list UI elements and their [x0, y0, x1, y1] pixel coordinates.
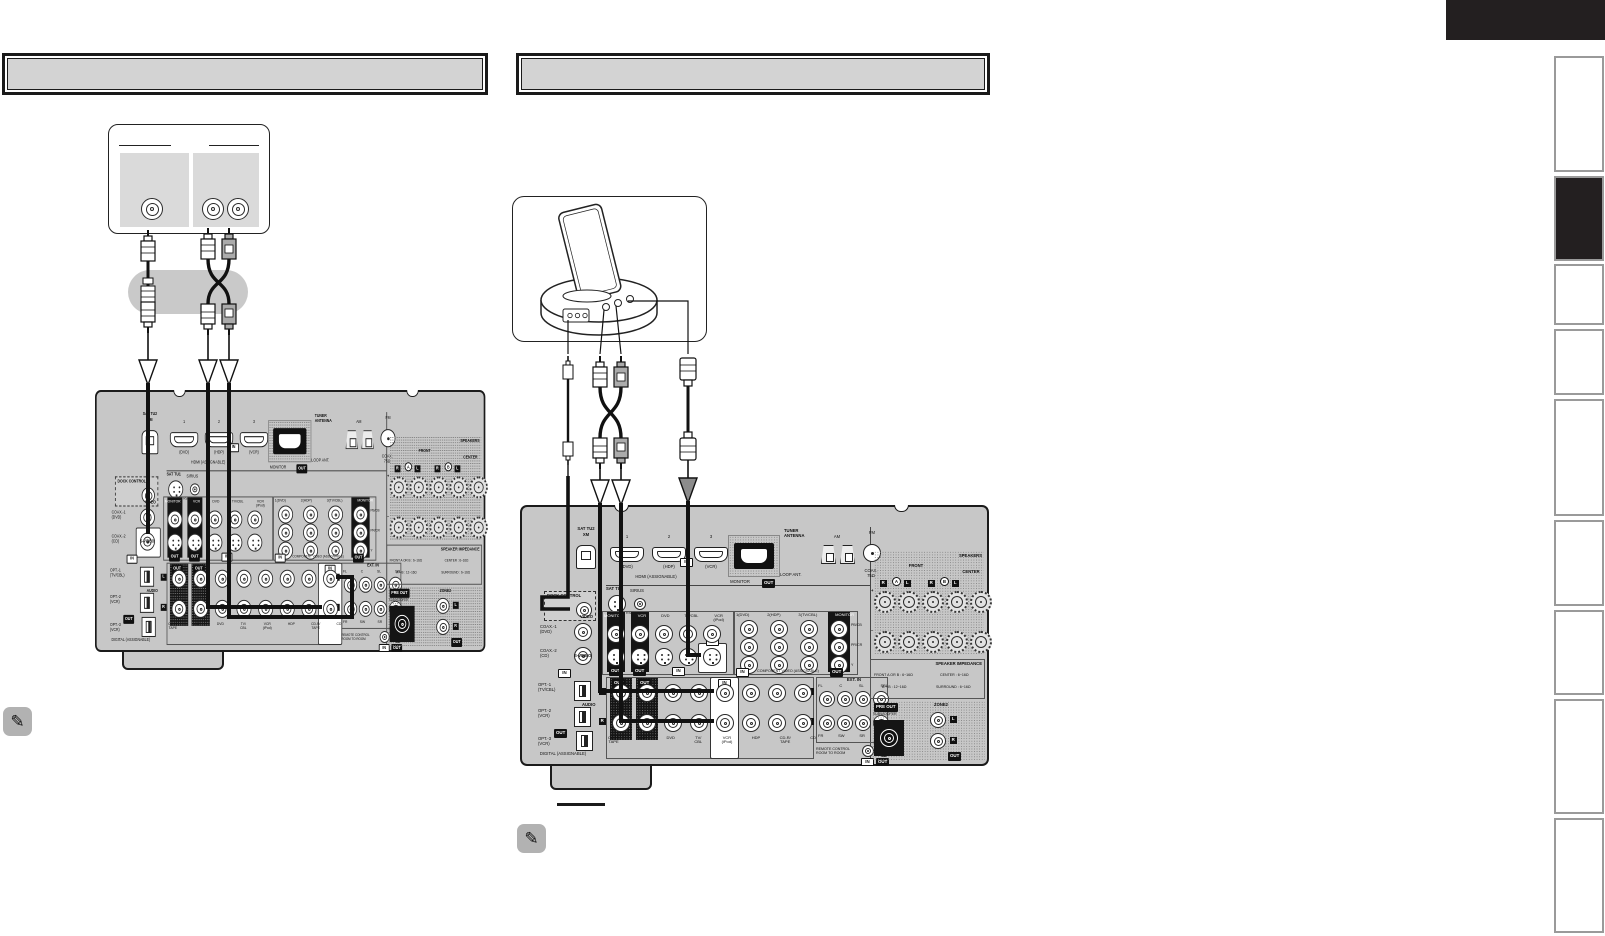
out-badge: OUT: [296, 464, 307, 473]
zone2-label: ZONE2: [924, 703, 958, 708]
grid-label: SR: [377, 620, 382, 624]
speaker-l-badge: L: [455, 465, 460, 472]
grid-label: MONITOR: [357, 498, 373, 502]
rca-jack: [353, 524, 368, 542]
component-column-labels: 1(DVD)2(HDP)3(TV/CBL)MONITOR: [275, 498, 373, 502]
am-terminal: [821, 545, 836, 564]
rca-jack: [742, 684, 760, 702]
coax1-jack: [140, 508, 155, 526]
in-badge: IN: [736, 668, 749, 677]
zone2-l-jack: [436, 598, 449, 614]
opt1-label: OPT.-1 (TV/CBL): [538, 683, 572, 693]
speaker-post: [874, 631, 896, 653]
speaker-post: [450, 517, 468, 539]
opt1-connector: [574, 681, 591, 701]
grid-label: PB/CB: [851, 624, 862, 628]
audio-r-badge: R: [599, 718, 606, 725]
out-badge: OUT: [762, 579, 775, 588]
speaker-post: [874, 591, 896, 613]
rca-jack: [236, 600, 251, 618]
component-caption: COMPONENT VIDEO (ASSIGNABLE): [750, 669, 826, 673]
impedance-cell: CENTER : 6~16Ω: [940, 673, 984, 677]
av-receiver-rear-panel-left: SAT TU2 XM 1 (DVD) 2 (HDP) 3 (VCR) IN HD…: [95, 390, 485, 652]
chassis-notch: [894, 505, 909, 512]
fm-label: FM: [862, 531, 882, 536]
sidebar-tab-5: [1554, 399, 1604, 516]
page-corner-tab: [1446, 0, 1605, 40]
dock-control-label: DOCK CONTROL: [547, 594, 595, 599]
grid-label: C: [839, 684, 842, 688]
grid-label: PB/CB: [370, 509, 379, 513]
pencil-glyph: ✎: [10, 712, 24, 732]
pencil-glyph: ✎: [524, 829, 538, 849]
rca-jack: [328, 505, 343, 523]
av-receiver-rear-panel-right: SAT TU2 XM 1 (DVD) 2 (HDP) 3 (VCR) IN HD…: [520, 505, 989, 766]
rca-jack: [278, 524, 293, 542]
rca-jack: [800, 638, 818, 656]
hdmi-1-sub: (DVD): [170, 450, 198, 455]
coax1-label: COAX.-1 (DVD): [540, 625, 572, 635]
rc-jack: [190, 483, 200, 495]
svideo-label: S-VIDEO: [574, 654, 602, 659]
rca-jack: [215, 600, 230, 618]
rca-jack: [631, 625, 649, 643]
grid-label: HDP: [752, 736, 760, 745]
rca-jack: [830, 620, 848, 638]
grid-label: VCR (iPod): [263, 622, 272, 631]
rca-jack: [703, 625, 721, 643]
sidebar-tab-7: [1554, 610, 1604, 695]
grid-label: DVD: [217, 622, 224, 631]
rca-jack: [800, 620, 818, 638]
rca-jack: [227, 534, 242, 552]
rca-jack: [740, 638, 758, 656]
grid-label: VCR (iPod): [256, 499, 265, 508]
sat-tu1-label: SAT TU1: [606, 587, 632, 592]
in-badge: IN: [558, 669, 571, 678]
rca-jack: [794, 684, 812, 702]
rca-jack: [353, 505, 368, 523]
in-badge: IN: [228, 443, 239, 452]
speaker-post: [390, 517, 408, 539]
rca-jack: [301, 570, 316, 588]
hdmi-1-connector: [610, 547, 644, 562]
sidebar-tab-1: [1554, 56, 1604, 172]
in-badge: IN: [672, 667, 685, 676]
subwoofer-jack: [880, 729, 898, 747]
rca-jack: [690, 684, 708, 702]
grid-label: VCR: [638, 614, 646, 623]
speakers-title: SPEAKERS: [436, 439, 479, 444]
coax2-label: COAX.-2 (CD): [112, 535, 139, 545]
zone2-l-badge: L: [950, 716, 957, 723]
rca-jack: [344, 601, 357, 617]
rca-jack: [323, 600, 338, 618]
grid-label: Y: [370, 550, 379, 554]
rca-jack: [837, 715, 853, 731]
audio-r-badge: R: [161, 604, 166, 611]
component-row-labels: PB/CBPR/CRY: [370, 509, 379, 553]
impedance-cell: CENTER : 6~16Ω: [445, 559, 482, 563]
chassis-notch: [614, 505, 629, 512]
speaker-post: [970, 591, 992, 613]
sidebar-tab-4: [1554, 329, 1604, 395]
hdmi-3-num: 3: [694, 535, 728, 540]
out-badge: OUT: [451, 638, 462, 647]
remote-control-label: REMOTE CONTROL ROOM TO ROOM: [816, 747, 862, 755]
coax1-label: COAX.-1 (DVD): [112, 510, 139, 520]
speaker-r-badge: R: [928, 580, 935, 587]
panel-divider: [606, 585, 870, 586]
speaker-r-badge: R: [435, 465, 440, 472]
grid-label: TV/ CBL: [694, 736, 702, 745]
chassis-notch: [406, 390, 418, 397]
rca-jack: [359, 577, 372, 593]
rca-jack: [258, 570, 273, 588]
video-label: VIDEO: [580, 615, 602, 620]
speakers-front-label: FRONT: [884, 564, 948, 569]
opt1-label: OPT.-1 (TV/CBL): [110, 569, 138, 579]
fm-label: FM: [380, 416, 397, 421]
speaker-r-badge: R: [395, 465, 400, 472]
opt1-connector: [140, 567, 154, 587]
loop-ant-label: LOOP ANT.: [311, 458, 343, 463]
grid-label: 1(DVD): [736, 613, 749, 617]
section-header-left-title: [7, 58, 483, 90]
grid-label: SL: [859, 684, 864, 688]
out-badge: OUT: [189, 553, 200, 562]
audio-label: AUDIO: [147, 589, 165, 594]
speaker-post: [430, 517, 448, 539]
rca-jack: [167, 534, 182, 552]
am-label: AM: [346, 420, 371, 425]
speaker-a-badge: A: [892, 577, 901, 586]
rca-jack: [612, 684, 630, 702]
rca-jack: [374, 577, 387, 593]
hdmi-1-num: 1: [610, 535, 644, 540]
rca-jack: [740, 620, 758, 638]
rca-jack: [770, 620, 788, 638]
grid-label: Y: [851, 664, 862, 668]
rca-jack: [794, 714, 812, 732]
opt3-connector: [576, 731, 593, 751]
zone2-l-jack: [930, 712, 946, 728]
hdmi-monitor-label: MONITOR: [722, 580, 758, 585]
coax1-jack: [574, 623, 592, 641]
speaker-l-badge: L: [952, 580, 959, 587]
out-badge: OUT: [609, 667, 622, 676]
opt2-connector: [574, 707, 591, 727]
xm-usb-connector: [142, 430, 159, 454]
speaker-post: [970, 631, 992, 653]
sidebar-tab-6: [1554, 520, 1604, 606]
ipod-dock-illustration: [513, 197, 706, 341]
rca-jack: [328, 524, 343, 542]
grid-label: CD-R/ TAPE: [780, 736, 791, 745]
am-terminal: [840, 545, 855, 564]
grid-label: 1(DVD): [275, 498, 286, 502]
section-header-left: [2, 53, 488, 95]
chassis-notch: [173, 390, 185, 397]
speaker-post: [898, 591, 920, 613]
hdmi-3-num: 3: [240, 420, 268, 425]
sidebar-tab-9: [1554, 818, 1604, 933]
sidebar-tab-2-active: [1554, 176, 1604, 261]
svideo-label: S-VIDEO: [140, 540, 163, 545]
impedance-title: SPEAKER IMPEDANCE: [888, 662, 982, 667]
speaker-post: [946, 591, 968, 613]
section-header-right-title: [521, 58, 985, 90]
opt3-label: OPT.-3 (VCR): [538, 737, 572, 747]
grid-label: 3(TV/CBL): [327, 498, 343, 502]
rca-jack: [227, 510, 242, 528]
rca-jack: [664, 684, 682, 702]
rca-jack: [278, 505, 293, 523]
speakers-center-label: CENTER: [460, 455, 482, 460]
rca-jack: [258, 600, 273, 618]
subwoofer-label: SUBWOOFER: [389, 598, 422, 602]
rca-jack: [768, 714, 786, 732]
video-column-labels: MONITORVCRDVDTV/CBLVCR (iPod): [165, 499, 265, 508]
audio-l-badge: L: [161, 574, 166, 581]
rca-jack: [193, 570, 208, 588]
rca-jack: [247, 534, 262, 552]
rca-jack: [167, 510, 182, 528]
rca-jack: [247, 510, 262, 528]
digital-group-label: DIGITAL (ASSIGNABLE): [103, 638, 158, 643]
sirius-label: SIRIUS: [630, 589, 654, 594]
in-badge: IN: [275, 554, 286, 563]
audio-l-badge: L: [599, 688, 606, 695]
impedance-cell: FRONT A OR B : 6~16Ω: [874, 673, 938, 677]
out-badge: OUT: [169, 553, 180, 562]
grid-label: VCR: [194, 622, 201, 631]
ipod-dock-box: [512, 196, 707, 342]
component-caption: COMPONENT VIDEO (ASSIGNABLE): [286, 555, 349, 559]
grid-label: PR/CR: [370, 530, 379, 534]
subwoofer-label: SUBWOOFER: [873, 712, 913, 716]
grid-label: FL: [818, 684, 823, 688]
speakers-center-label: CENTER: [958, 570, 984, 575]
grid-label: DVD: [661, 614, 669, 623]
speaker-l-badge: L: [904, 580, 911, 587]
grid-label: VCR: [639, 736, 647, 745]
tuner-antenna-label: TUNER ANTENNA: [784, 529, 824, 539]
sirius-label: SIRIUS: [187, 474, 207, 479]
opt2-connector: [140, 593, 154, 613]
grid-label: MONITOR: [165, 499, 181, 508]
rca-jack: [655, 648, 673, 666]
audio-column-labels: CD-R/ TAPEVCRDVDTV/ CBLVCR (iPod)HDPCD-R…: [168, 622, 341, 631]
opt2-label: OPT.-2 (VCR): [110, 595, 138, 605]
grid-label: VCR: [193, 499, 200, 508]
dock-control-label: DOCK CONTROL: [117, 479, 157, 484]
rca-jack: [215, 570, 230, 588]
sidebar-tab-3: [1554, 264, 1604, 325]
am-terminal: [346, 430, 358, 449]
impedance-title: SPEAKER IMPEDANCE: [401, 548, 479, 553]
rca-jack: [374, 601, 387, 617]
speaker-r-badge: R: [880, 580, 887, 587]
hdmi-monitor-label: MONITOR: [263, 465, 293, 470]
grid-label: 2(HDP): [301, 498, 312, 502]
player-audio-out-r-jack: [227, 198, 249, 220]
impedance-cell: A + B : 12~16Ω: [396, 571, 443, 575]
grid-label: SL: [377, 570, 381, 574]
speaker-post: [898, 631, 920, 653]
zone2-r-jack: [436, 619, 449, 635]
speakers-title: SPEAKERS: [930, 554, 982, 559]
rca-jack: [303, 524, 318, 542]
rca-jack: [344, 577, 357, 593]
speaker-post: [470, 476, 488, 498]
tuner-antenna-label: TUNER ANTENNA: [315, 414, 348, 424]
speaker-post: [470, 517, 488, 539]
rca-jack: [855, 715, 871, 731]
rca-jack: [193, 600, 208, 618]
panel-divider: [167, 470, 387, 471]
rca-jack: [716, 714, 734, 732]
in-badge: IN: [222, 553, 233, 562]
xm-usb-connector: [576, 545, 596, 569]
rca-jack: [207, 534, 222, 552]
impedance-cell: A + B : 12~16Ω: [882, 685, 938, 689]
rca-jack: [768, 684, 786, 702]
coax2-label: COAX.-2 (CD): [540, 649, 572, 659]
rca-jack: [607, 625, 625, 643]
audio-label: AUDIO: [582, 703, 604, 708]
speaker-post: [410, 517, 428, 539]
player-label-line: [209, 145, 259, 146]
video-column-labels: MONITORVCRDVDTV/CBLVCR (iPod): [604, 614, 724, 623]
grid-label: DVD: [666, 736, 674, 745]
rca-jack: [770, 638, 788, 656]
rca-jack: [855, 691, 871, 707]
am-terminal: [361, 430, 373, 449]
out-badge: OUT: [830, 668, 843, 677]
rca-jack: [679, 648, 697, 666]
hdmi-group-label: HDMI (ASSIGNABLE): [173, 460, 243, 465]
rca-jack: [716, 684, 734, 702]
zone2-r-badge: R: [453, 623, 458, 630]
am-label: AM: [822, 535, 852, 540]
note-pencil-icon: ✎: [517, 824, 546, 853]
rca-jack: [301, 600, 316, 618]
speaker-post: [430, 476, 448, 498]
speaker-post: [946, 631, 968, 653]
hdmi-3-sub: (VCR): [240, 450, 268, 455]
grid-label: DVD: [212, 499, 219, 508]
grid-label: FL: [343, 570, 347, 574]
grid-label: FR: [343, 620, 347, 624]
grid-label: CD-R/ TAPE: [168, 622, 177, 631]
speaker-post: [450, 476, 468, 498]
rca-jack: [742, 714, 760, 732]
zone2-r-badge: R: [950, 737, 957, 744]
grid-label: SR: [859, 734, 865, 738]
rca-jack: [655, 625, 673, 643]
hdmi-1-connector: [170, 432, 198, 447]
zone2-r-jack: [930, 733, 946, 749]
rca-jack: [664, 714, 682, 732]
grid-label: MONITOR: [604, 614, 623, 623]
in-badge: IN: [127, 555, 138, 564]
grid-label: FR: [818, 734, 823, 738]
grid-label: SW: [360, 620, 365, 624]
hdmi-1-num: 1: [170, 420, 198, 425]
remote-control-label: REMOTE CONTROL ROOM TO ROOM: [341, 633, 379, 641]
player-audio-out-l-jack: [202, 198, 224, 220]
audio-column-labels: CD-R/ TAPEVCRDVDTV/ CBLVCR (iPod)HDPCD-R…: [608, 736, 816, 745]
video-label: VIDEO: [145, 500, 163, 505]
loop-ant-label: LOOP ANT.: [780, 573, 818, 578]
rca-jack: [172, 570, 187, 588]
speakers-front-label: FRONT: [398, 449, 451, 454]
rca-jack: [837, 691, 853, 707]
xm-port-label2: XM: [133, 418, 166, 423]
impedance-cell: FRONT A OR B : 6~16Ω: [390, 559, 443, 563]
cable-group-stadium: [128, 270, 248, 314]
rca-jack: [819, 691, 835, 707]
out-badge: OUT: [948, 752, 961, 761]
speaker-post: [922, 591, 944, 613]
rca-jack: [172, 600, 187, 618]
rca-jack: [638, 684, 656, 702]
speaker-b-badge: B: [445, 462, 452, 471]
hdmi-monitor-out-connector: [734, 543, 774, 569]
hdmi-3-connector: [694, 547, 728, 562]
zone2-l-badge: L: [453, 602, 458, 609]
component-column-labels: 1(DVD)2(HDP)3(TV/CBL)MONITOR: [736, 613, 854, 617]
opt3-connector: [142, 617, 156, 637]
impedance-cell: SURROUND : 6~16Ω: [441, 571, 481, 575]
source-player-box: [108, 124, 270, 234]
rca-jack: [187, 510, 202, 528]
grid-label: SW: [838, 734, 844, 738]
preout-badge: PRE OUT: [874, 703, 898, 712]
speaker-l-badge: L: [415, 465, 420, 472]
grid-label: CD-R/ TAPE: [311, 622, 320, 631]
grid-label: MONITOR: [835, 613, 854, 617]
speaker-post: [410, 476, 428, 498]
hdmi-monitor-out-connector: [273, 428, 306, 454]
out-badge: OUT: [633, 667, 646, 676]
speaker-post: [390, 476, 408, 498]
rca-jack: [280, 600, 295, 618]
hdmi-group-label: HDMI (ASSIGNABLE): [614, 575, 698, 580]
player-coax-out-jack: [141, 198, 163, 220]
rca-jack: [359, 601, 372, 617]
preout-badge: PRE OUT: [390, 589, 410, 598]
rc-jack: [634, 598, 646, 610]
hdmi-2-num: 2: [652, 535, 686, 540]
rca-jack: [323, 570, 338, 588]
hdmi-2-num: 2: [205, 420, 233, 425]
opt3-label: OPT.-3 (VCR): [110, 623, 138, 633]
grid-label: HDP: [288, 622, 295, 631]
in-badge: IN: [680, 558, 693, 567]
component-row-labels: PB/CBPR/CRY: [851, 624, 862, 668]
rca-jack: [207, 510, 222, 528]
grid-label: TV/CBL: [684, 614, 698, 623]
rca-jack: [280, 570, 295, 588]
rca-jack: [187, 534, 202, 552]
speaker-b-badge: B: [940, 577, 949, 586]
grid-label: VCR (iPod): [722, 736, 733, 745]
rca-jack: [638, 714, 656, 732]
zone2-label: ZONE2: [431, 589, 459, 594]
rca-jack: [612, 714, 630, 732]
